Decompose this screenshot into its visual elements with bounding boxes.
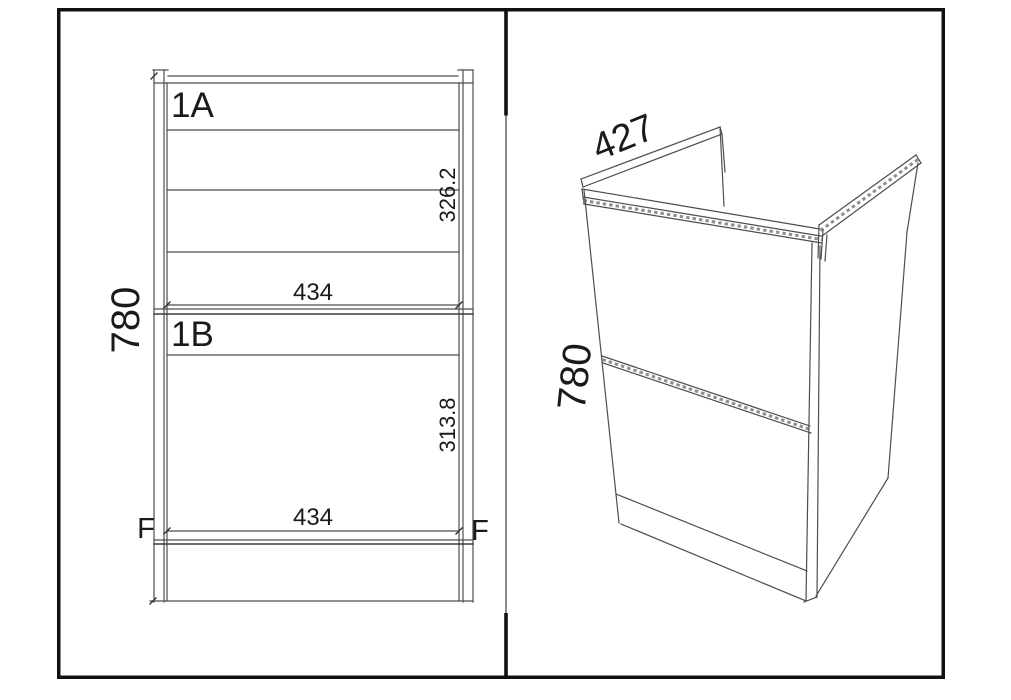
plinth-band <box>150 540 473 601</box>
dim-height-780: 780 <box>104 287 148 354</box>
drawing-sheet: 1A 1B 780 326.2 313.8 434 434 F F <box>0 0 1011 700</box>
iso-dim-height-780: 780 <box>550 341 601 412</box>
fixing-mark-left: F <box>137 513 155 545</box>
iso-dim-depth-427: 427 <box>586 107 661 170</box>
iso-top-front-rail <box>582 189 822 243</box>
iso-front-face <box>584 190 820 602</box>
dim-width-bottom: 434 <box>293 504 333 531</box>
technical-drawing-canvas: 1A 1B 780 326.2 313.8 434 434 F F <box>0 0 1011 700</box>
isometric-view: 427 780 <box>550 107 921 602</box>
label-section-1a: 1A <box>171 86 214 125</box>
fixing-mark-right: F <box>471 515 489 547</box>
dim-drawer-b-height: 313.8 <box>435 397 460 452</box>
front-elevation: 1A 1B 780 326.2 313.8 434 434 F F <box>104 70 489 605</box>
label-section-1b: 1B <box>171 315 214 354</box>
dim-width-top: 434 <box>293 279 333 306</box>
iso-right-side-panel <box>816 163 918 596</box>
top-cap <box>154 76 473 83</box>
dim-drawer-a-height: 326.2 <box>435 167 460 222</box>
section-divider-band <box>154 309 473 314</box>
